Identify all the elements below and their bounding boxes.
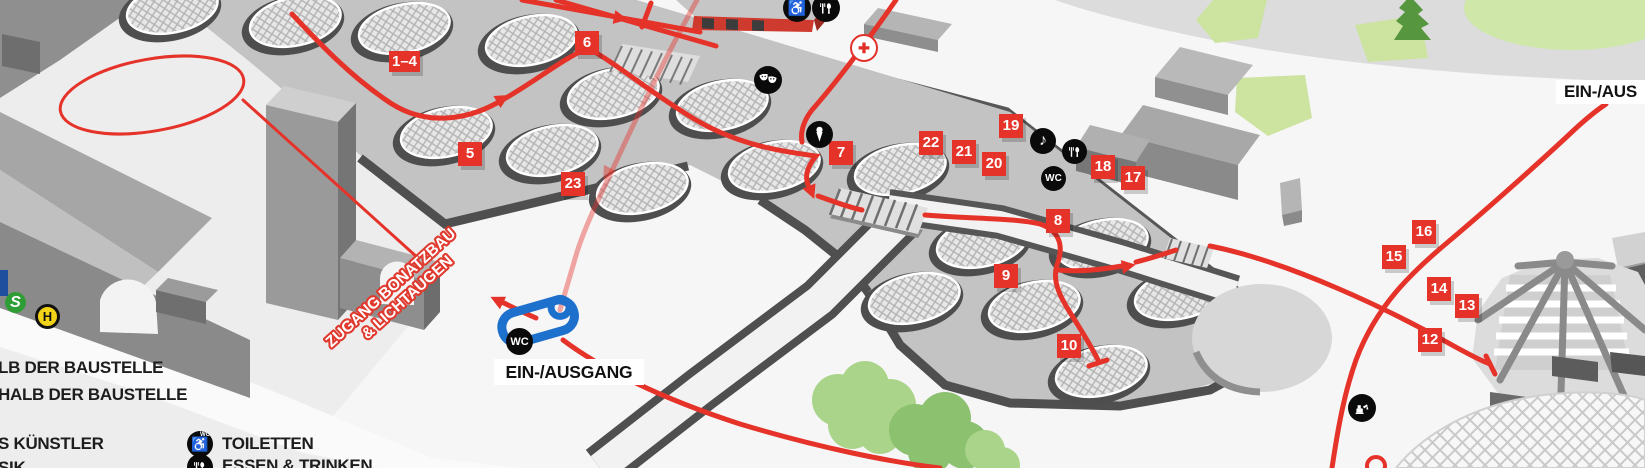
wheelchair-glyph: ♿ — [191, 436, 208, 453]
marker-9: 9 — [994, 264, 1018, 288]
marker-6: 6 — [575, 31, 599, 55]
excavator-glyph — [1354, 402, 1370, 415]
legend-line-music: SIK — [0, 458, 25, 468]
ice-cream-glyph — [814, 126, 825, 143]
music-icon: ♪ — [1030, 128, 1056, 154]
sbahn-logo: S — [5, 292, 26, 313]
marker-22: 22 — [919, 131, 943, 155]
food-icon-right — [1062, 139, 1087, 164]
excavator-icon — [1348, 394, 1376, 422]
marker-14: 14 — [1427, 277, 1451, 301]
entrance-exit-label: EIN-/AUSGANG — [494, 359, 644, 385]
wc-icon-right: WC — [1041, 166, 1066, 191]
wc-mini-label: WC — [200, 432, 210, 438]
wc-mini-label: WC — [796, 0, 808, 2]
wheelchair-glyph: ♿ — [788, 0, 807, 17]
legend-line-artists: S KÜNSTLER — [0, 434, 104, 454]
marker-12: 12 — [1418, 328, 1442, 352]
fork-knife-glyph — [193, 460, 207, 468]
first-aid-icon: ✚ — [850, 34, 878, 62]
construction-site-map: ZUGANG BONATZBAU & LICHTAUGEN 1–4 5 6 23… — [0, 0, 1645, 468]
masks-glyph — [759, 74, 777, 85]
marker-19: 19 — [999, 114, 1023, 138]
wc-label: WC — [1045, 173, 1062, 184]
ubahn-logo-fragment — [0, 270, 8, 296]
fork-knife-glyph — [819, 1, 834, 16]
legend-label-toiletten: TOILETTEN — [222, 434, 313, 454]
marker-21: 21 — [952, 140, 976, 164]
legend-line-inside-site: LB DER BAUSTELLE — [0, 358, 163, 378]
marker-5: 5 — [458, 142, 482, 166]
legend-line-outside-site: HALB DER BAUSTELLE — [0, 385, 187, 405]
entrance-exit-label-right: EIN-/AUS — [1556, 80, 1645, 104]
marker-23: 23 — [561, 172, 585, 196]
marker-8: 8 — [1046, 209, 1070, 233]
ice-cream-icon — [806, 121, 833, 148]
music-note-glyph: ♪ — [1039, 132, 1047, 150]
wc-label: WC — [510, 336, 528, 348]
marker-7: 7 — [829, 141, 853, 165]
marker-1-4: 1–4 — [389, 51, 420, 72]
map-canvas: ZUGANG BONATZBAU & LICHTAUGEN — [0, 0, 1645, 468]
marker-20: 20 — [982, 152, 1006, 176]
wc-icon-entrance: WC — [506, 328, 533, 355]
marker-10: 10 — [1057, 334, 1081, 358]
legend-label-essen-trinken: ESSEN & TRINKEN — [222, 456, 372, 468]
fork-knife-glyph — [1068, 145, 1082, 159]
theater-masks-icon — [754, 66, 782, 94]
bus-stop-logo: H — [35, 304, 60, 329]
marker-13: 13 — [1455, 294, 1479, 318]
marker-16: 16 — [1412, 220, 1436, 244]
red-cross-glyph: ✚ — [858, 40, 870, 57]
marker-18: 18 — [1091, 155, 1115, 179]
marker-17: 17 — [1121, 166, 1145, 190]
marker-15: 15 — [1382, 245, 1406, 269]
